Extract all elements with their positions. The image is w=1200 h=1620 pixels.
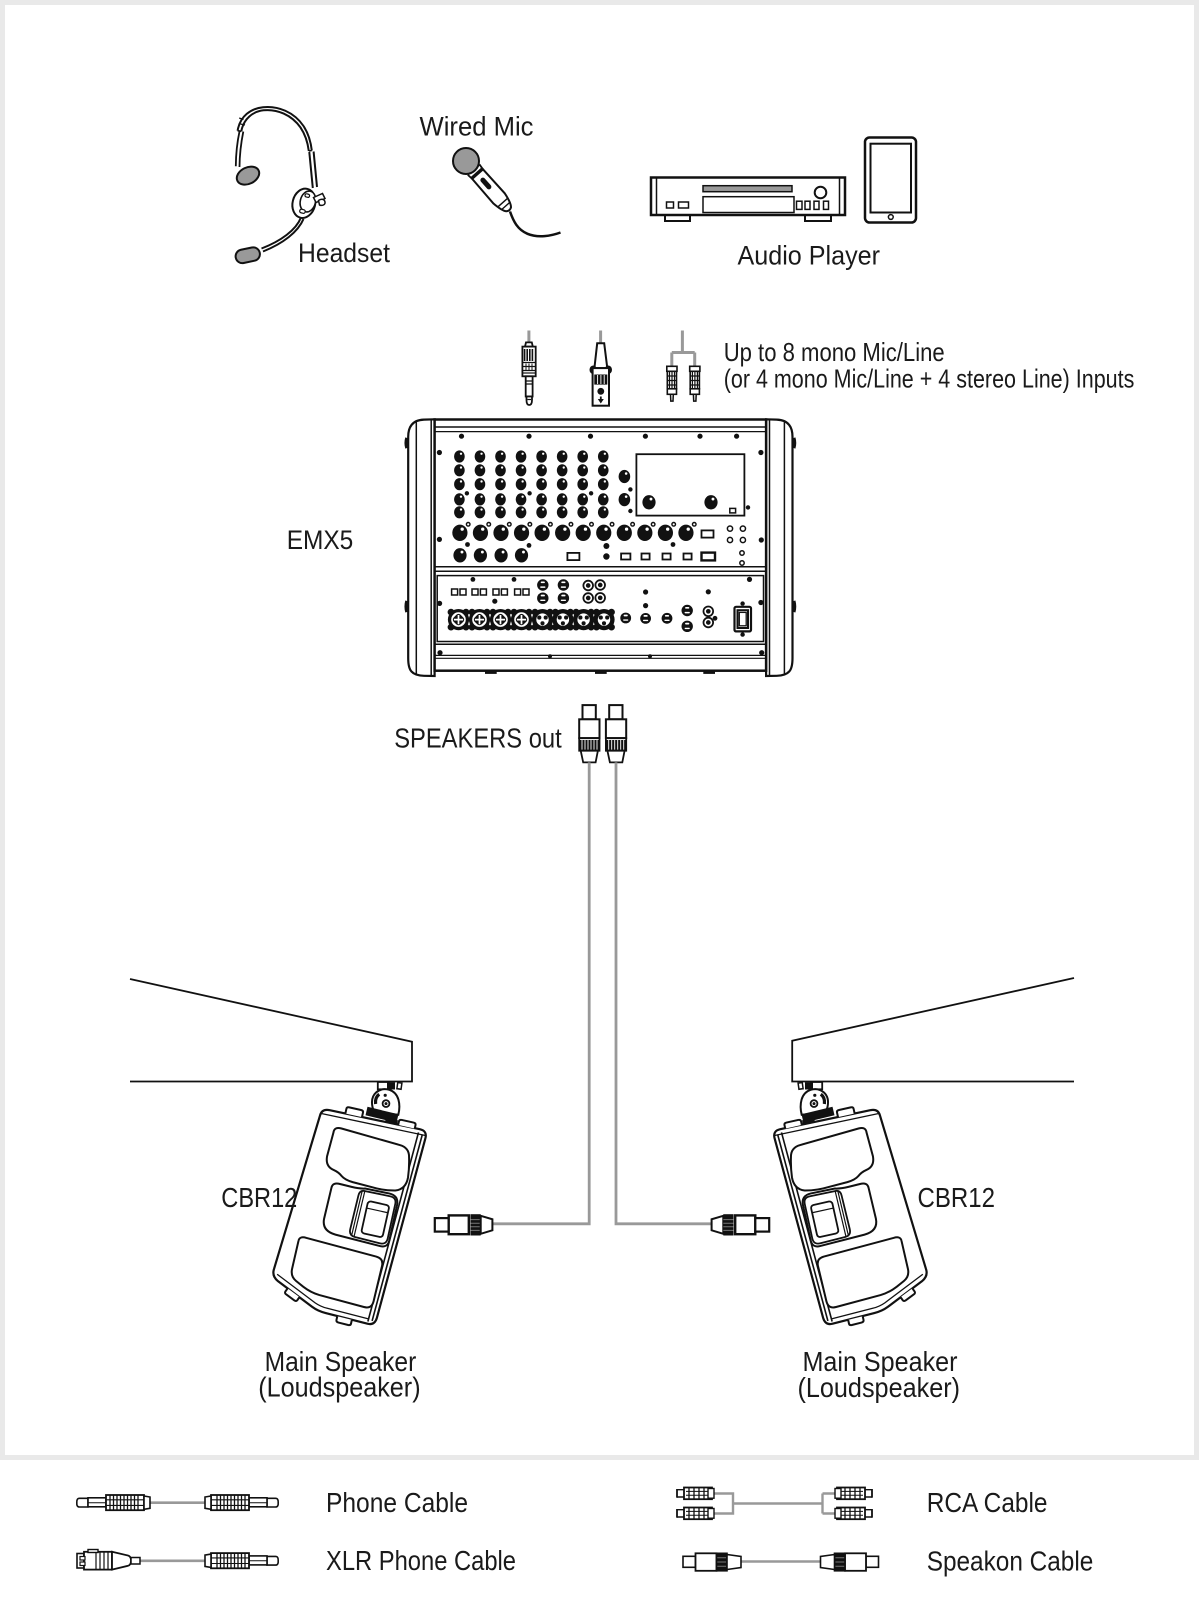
svg-text:Up to 8 mono Mic/Line: Up to 8 mono Mic/Line (724, 337, 945, 367)
svg-text:CBR12: CBR12 (918, 1182, 996, 1213)
svg-text:Speakon Cable: Speakon Cable (927, 1546, 1094, 1577)
svg-text:Wired Mic: Wired Mic (420, 112, 534, 142)
svg-text:EMX5: EMX5 (287, 525, 354, 555)
svg-text:(Loudspeaker): (Loudspeaker) (258, 1372, 420, 1403)
svg-text:Phone Cable: Phone Cable (326, 1487, 468, 1518)
svg-text:Audio Player: Audio Player (738, 241, 881, 271)
svg-text:CBR12: CBR12 (221, 1182, 297, 1213)
svg-text:(Loudspeaker): (Loudspeaker) (798, 1372, 961, 1403)
svg-text:SPEAKERS out: SPEAKERS out (394, 723, 562, 754)
svg-text:(or 4 mono Mic/Line + 4 stere: (or 4 mono Mic/Line + 4 stereo Line) Inp… (724, 364, 1135, 394)
svg-text:Headset: Headset (298, 238, 390, 268)
svg-text:XLR Phone Cable: XLR Phone Cable (326, 1545, 516, 1576)
svg-text:RCA Cable: RCA Cable (927, 1487, 1048, 1518)
